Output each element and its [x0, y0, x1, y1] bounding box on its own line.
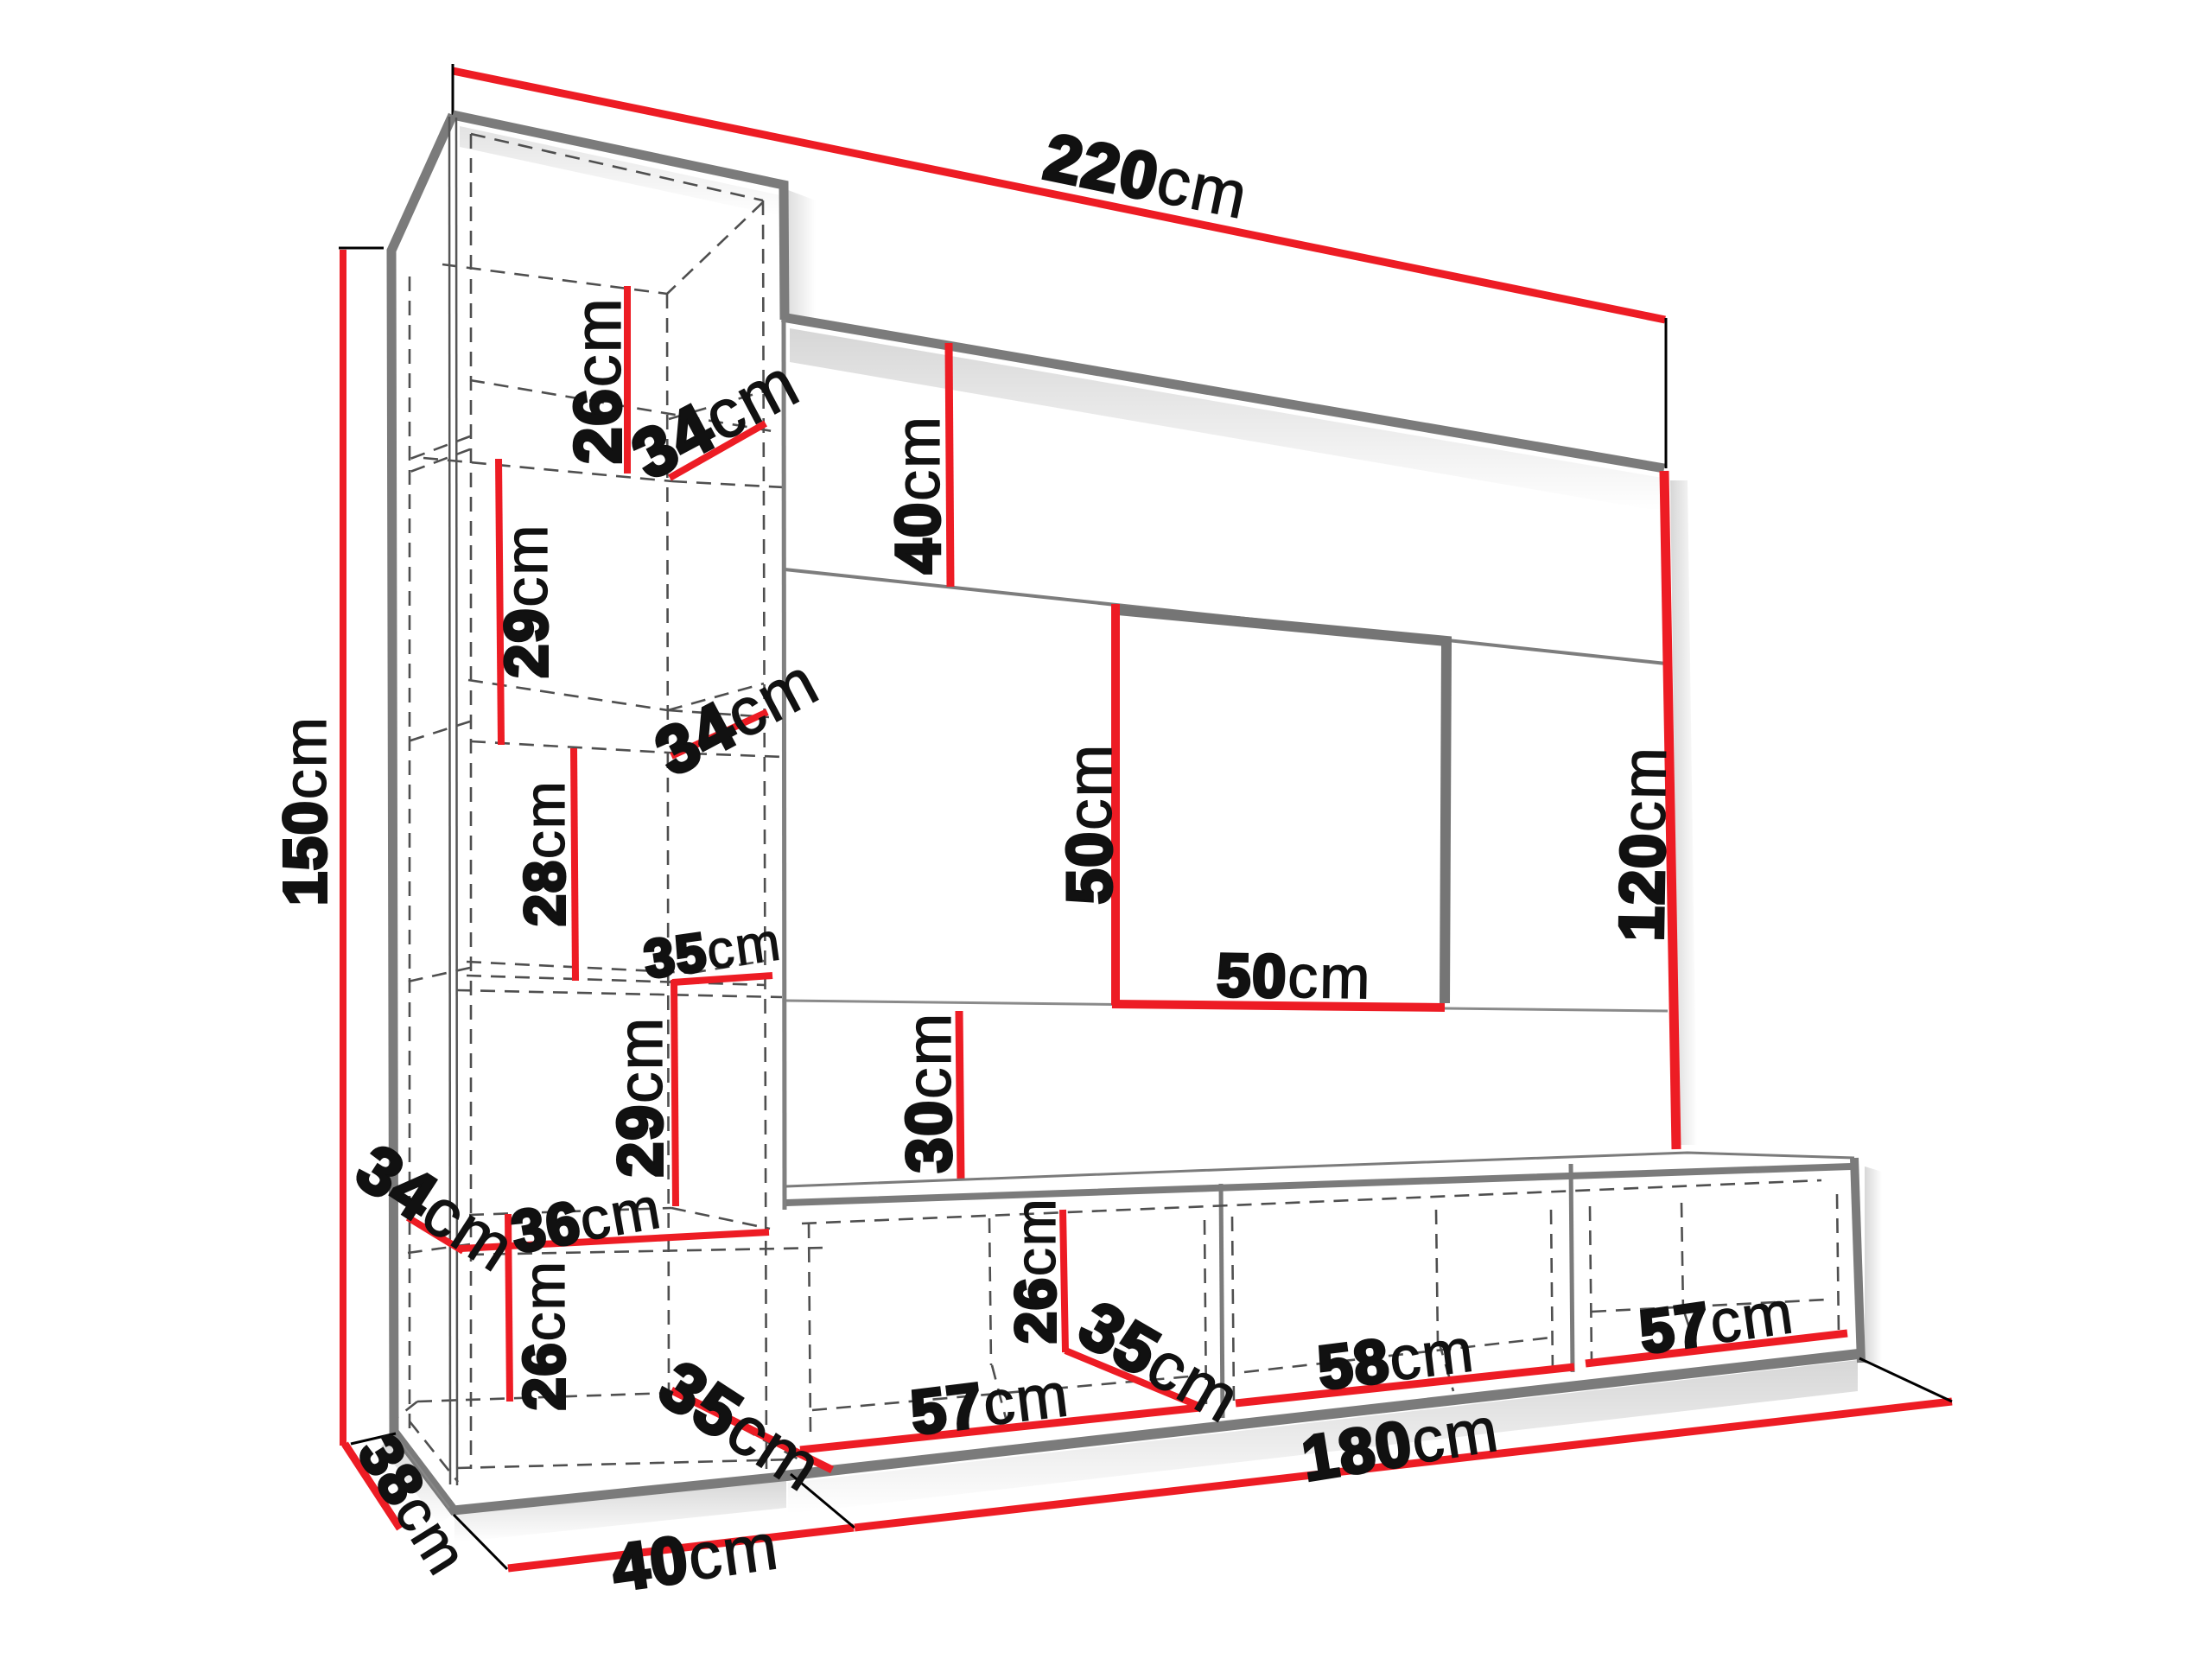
svg-text:29cm: 29cm [493, 523, 560, 677]
svg-text:120cm: 120cm [1607, 745, 1680, 941]
svg-text:50cm: 50cm [1055, 743, 1125, 905]
svg-text:50cm: 50cm [1217, 941, 1373, 1011]
svg-text:26cm: 26cm [512, 1260, 577, 1410]
svg-text:26cm: 26cm [562, 296, 635, 464]
svg-text:26cm: 26cm [1003, 1197, 1067, 1343]
svg-text:29cm: 29cm [606, 1016, 676, 1178]
svg-text:28cm: 28cm [512, 779, 576, 925]
svg-text:40cm: 40cm [884, 415, 953, 574]
svg-text:150cm: 150cm [271, 715, 339, 906]
svg-text:30cm: 30cm [894, 1012, 964, 1173]
